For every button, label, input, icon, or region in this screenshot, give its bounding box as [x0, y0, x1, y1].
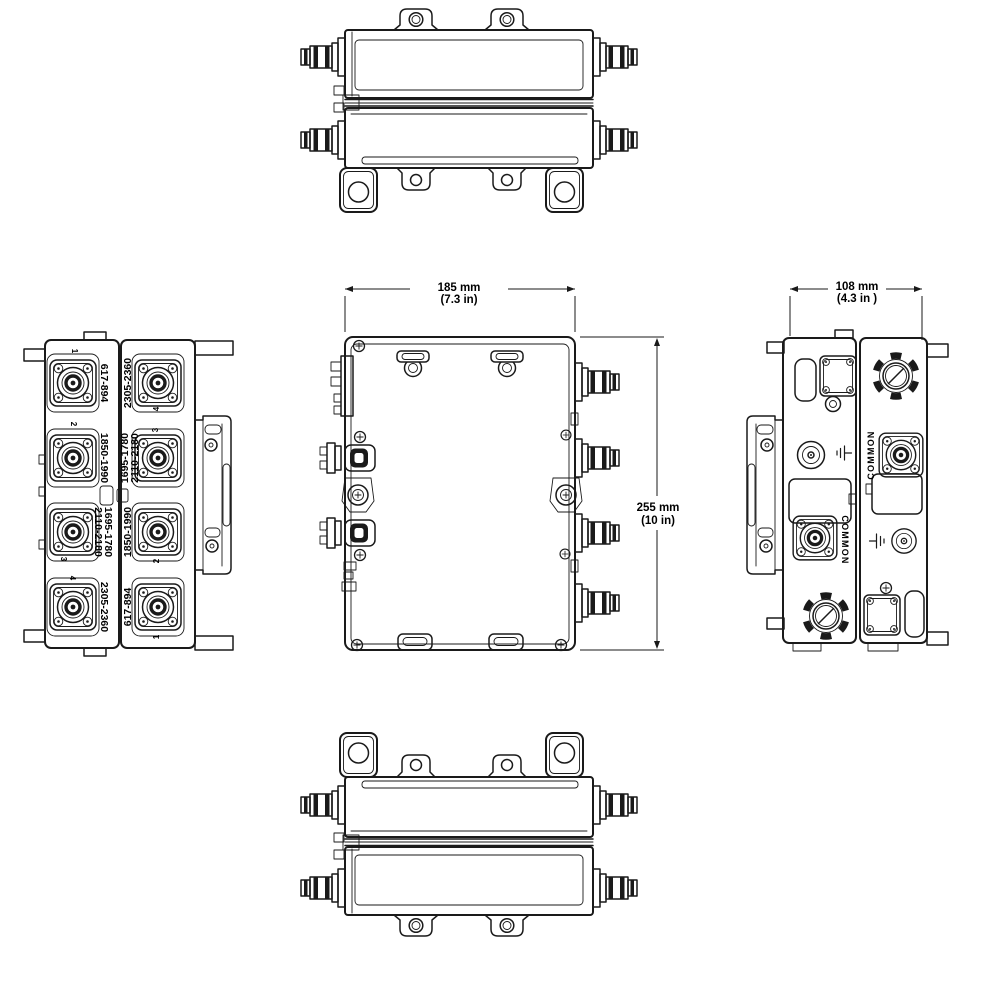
- bottom-view: [301, 733, 637, 936]
- mount-bracket: [195, 416, 231, 574]
- dim-depth-in: (4.3 in ): [837, 293, 877, 305]
- corner-screw: [354, 341, 365, 352]
- common-label: COMMON: [866, 430, 876, 479]
- rf-port-a1: [50, 360, 96, 406]
- castellated-connector: [872, 352, 919, 400]
- corner-stub: [24, 349, 45, 361]
- bottom-tab: [489, 634, 523, 650]
- coax-connector: [575, 363, 619, 401]
- port-number: 1: [70, 349, 79, 354]
- gusset-boss: [550, 478, 582, 512]
- side-port-housing: [320, 518, 375, 548]
- port-number: 4: [68, 576, 77, 581]
- coax-connector: [575, 439, 619, 477]
- port-freq-label: 617-894: [98, 364, 110, 403]
- corner-stub: [195, 341, 233, 355]
- rf-port-a2: [50, 435, 96, 481]
- corner-screw: [352, 640, 363, 651]
- ground-symbol: [870, 534, 885, 548]
- corner-stub: [927, 632, 948, 645]
- port-number: 2: [69, 422, 78, 427]
- blank-flange: [864, 595, 900, 635]
- front-view: [320, 337, 619, 651]
- rf-port-b4: [135, 584, 181, 630]
- common-label: COMMON: [840, 515, 850, 564]
- dimension-front-width: 185 mm (7.3 in): [345, 282, 575, 332]
- edge-screw: [355, 550, 366, 561]
- aux-round-connector: [892, 529, 916, 553]
- port-freq-label: 2110-2180: [92, 507, 104, 557]
- corner-stub: [24, 630, 45, 642]
- panel-screw: [881, 583, 892, 594]
- port-freq-label: 2110-2180: [129, 433, 141, 483]
- keyhole-slot: [491, 351, 523, 377]
- dim-height-mm: 255 mm: [637, 502, 680, 514]
- blank-flange: [820, 356, 856, 396]
- corner-stub: [767, 342, 784, 353]
- port-number: 3: [59, 557, 68, 562]
- corner-screw: [556, 640, 567, 651]
- edge-screw: [355, 432, 366, 443]
- edge-tab: [835, 330, 853, 338]
- edge-tab: [84, 648, 106, 656]
- dim-width-mm: 185 mm: [438, 282, 481, 294]
- corner-stub: [927, 344, 948, 357]
- aux-round-connector: [798, 442, 825, 469]
- rf-port-b1: [135, 360, 181, 406]
- mount-bracket: [747, 416, 783, 574]
- coax-connector: [575, 584, 619, 622]
- ground-symbol: [837, 446, 852, 460]
- corner-stub: [195, 636, 233, 650]
- port-number: 3: [151, 427, 160, 432]
- edge-screw: [560, 549, 570, 559]
- left-side-view: 1 617-894 2 1850-1990 3 1695-1780 2110-2…: [24, 332, 233, 656]
- label-plate: [795, 359, 816, 401]
- edge-screw: [561, 430, 571, 440]
- label-plate: [905, 591, 924, 637]
- keyhole-slot: [397, 351, 429, 377]
- port-freq-label: 1850-1990: [98, 433, 110, 483]
- port-freq-label: 2305-2360: [98, 582, 110, 632]
- rf-port-a4: [50, 584, 96, 630]
- port-freq-label: 617-894: [122, 588, 134, 627]
- common-port-1: [879, 433, 923, 477]
- edge-tab: [84, 332, 106, 340]
- rf-port-a3: [50, 509, 96, 555]
- small-round-connector: [826, 397, 841, 412]
- dimension-side-depth: 108 mm (4.3 in ): [790, 281, 922, 340]
- port-freq-label: 2305-2360: [122, 358, 134, 408]
- port-freq-label: 1850-1990: [122, 507, 134, 557]
- gusset-boss: [342, 478, 374, 512]
- port-number: 2: [152, 558, 161, 563]
- top-view: [301, 9, 637, 212]
- coax-connector: [575, 514, 619, 552]
- port-number: 1: [152, 634, 161, 639]
- rf-port-b2: [135, 435, 181, 481]
- dim-depth-mm: 108 mm: [836, 281, 879, 293]
- castellated-connector: [802, 592, 849, 640]
- side-port-housing: [320, 443, 375, 473]
- front-body: [345, 337, 575, 650]
- dim-height-in: (10 in): [641, 515, 675, 527]
- right-side-view: COMMON COMMON: [747, 330, 948, 651]
- access-panel: [872, 474, 922, 514]
- port-number: 4: [152, 406, 161, 411]
- dim-width-in: (7.3 in): [440, 294, 477, 306]
- corner-stub: [767, 618, 784, 629]
- rf-port-b3: [135, 509, 181, 555]
- bottom-tab: [398, 634, 432, 650]
- drawing-page: 1 617-894 2 1850-1990 3 1695-1780 2110-2…: [0, 0, 986, 1006]
- technical-drawing: 1 617-894 2 1850-1990 3 1695-1780 2110-2…: [0, 0, 986, 1006]
